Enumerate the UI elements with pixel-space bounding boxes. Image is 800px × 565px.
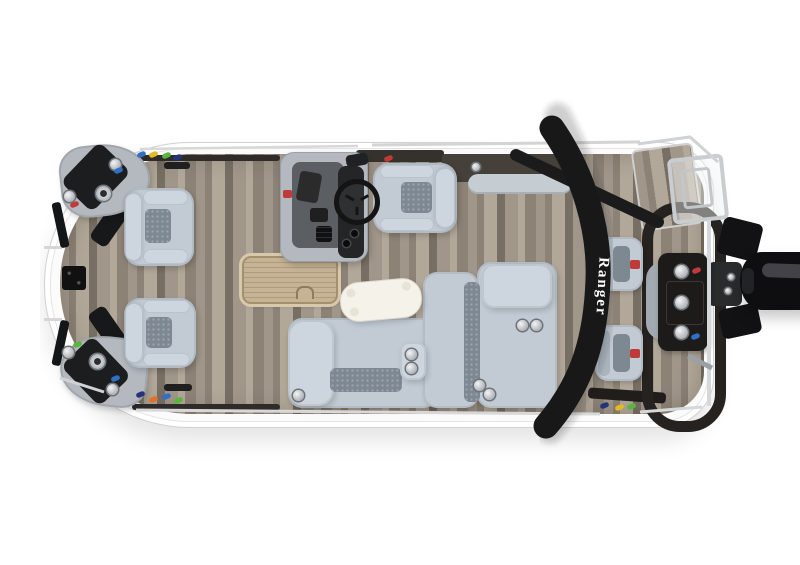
power-arch-overlay: [40, 16, 800, 549]
pontoon-boat-overhead-photo: Ranger: [40, 16, 800, 549]
